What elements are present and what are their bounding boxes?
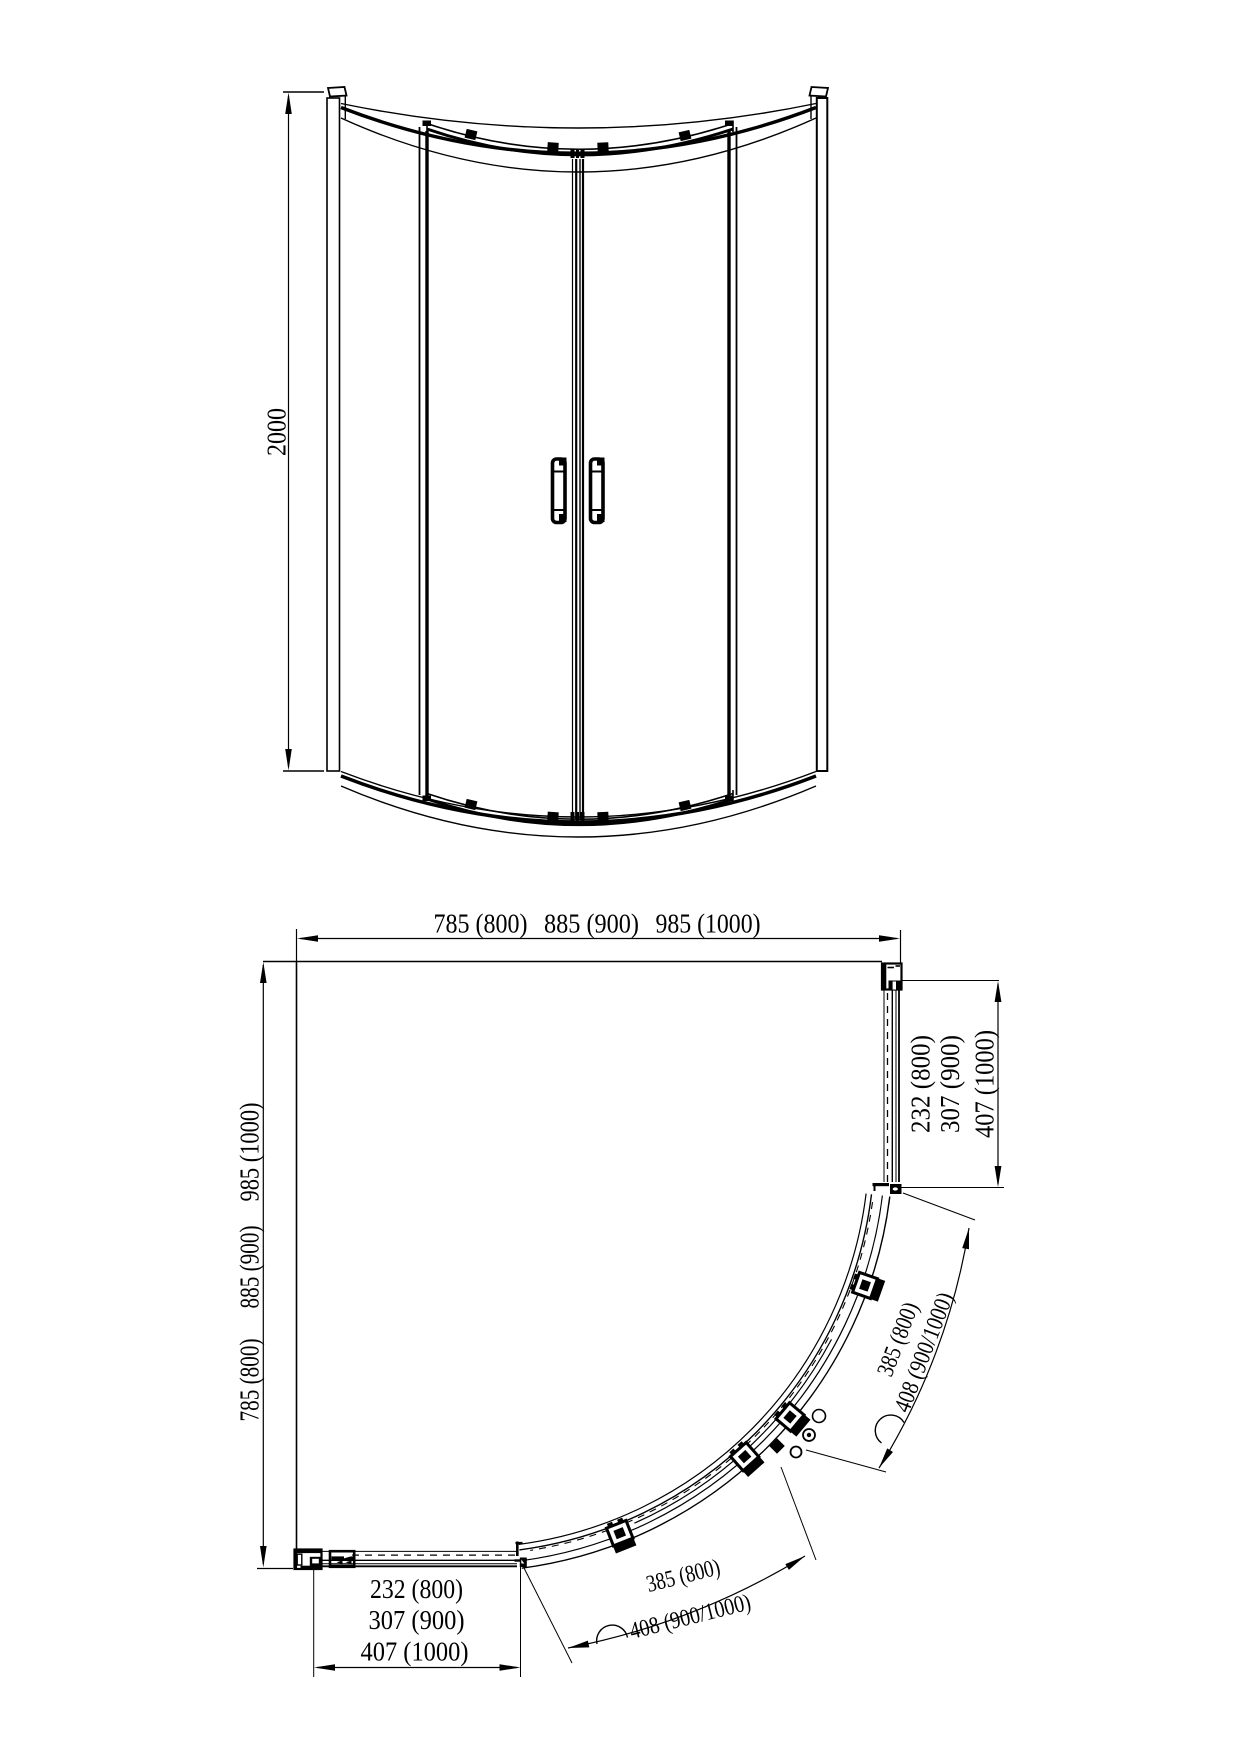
svg-text:232 (800): 232 (800) — [370, 1574, 463, 1604]
svg-text:985 (1000): 985 (1000) — [235, 1103, 265, 1202]
svg-text:307 (900): 307 (900) — [935, 1035, 965, 1133]
svg-text:407 (1000): 407 (1000) — [970, 1030, 1000, 1138]
svg-text:785 (800): 785 (800) — [235, 1339, 265, 1422]
svg-text:2000: 2000 — [262, 408, 292, 456]
svg-text:985 (1000): 985 (1000) — [656, 909, 761, 939]
svg-text:232 (800): 232 (800) — [906, 1035, 936, 1133]
svg-text:407 (1000): 407 (1000) — [361, 1637, 469, 1667]
svg-text:785 (800): 785 (800) — [434, 909, 528, 939]
svg-text:885 (900): 885 (900) — [544, 909, 639, 939]
svg-text:307 (900): 307 (900) — [369, 1605, 465, 1635]
svg-text:885 (900): 885 (900) — [235, 1226, 265, 1309]
